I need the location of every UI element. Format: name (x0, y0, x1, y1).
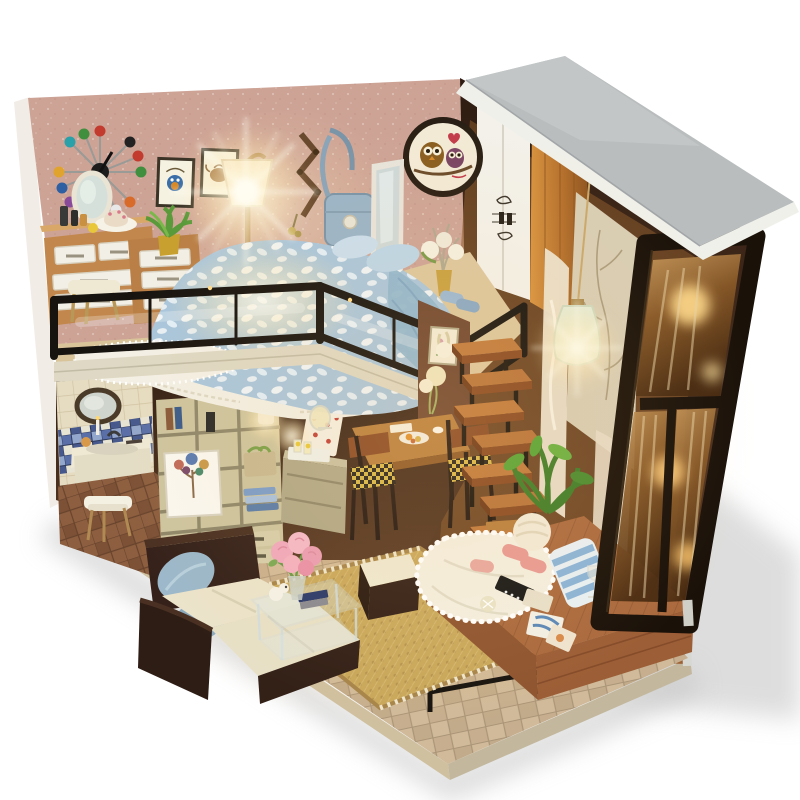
candle (96, 420, 99, 435)
product-photo-stage (0, 0, 800, 800)
dollhouse-photo (0, 0, 800, 800)
ambient-glow (100, 120, 760, 720)
